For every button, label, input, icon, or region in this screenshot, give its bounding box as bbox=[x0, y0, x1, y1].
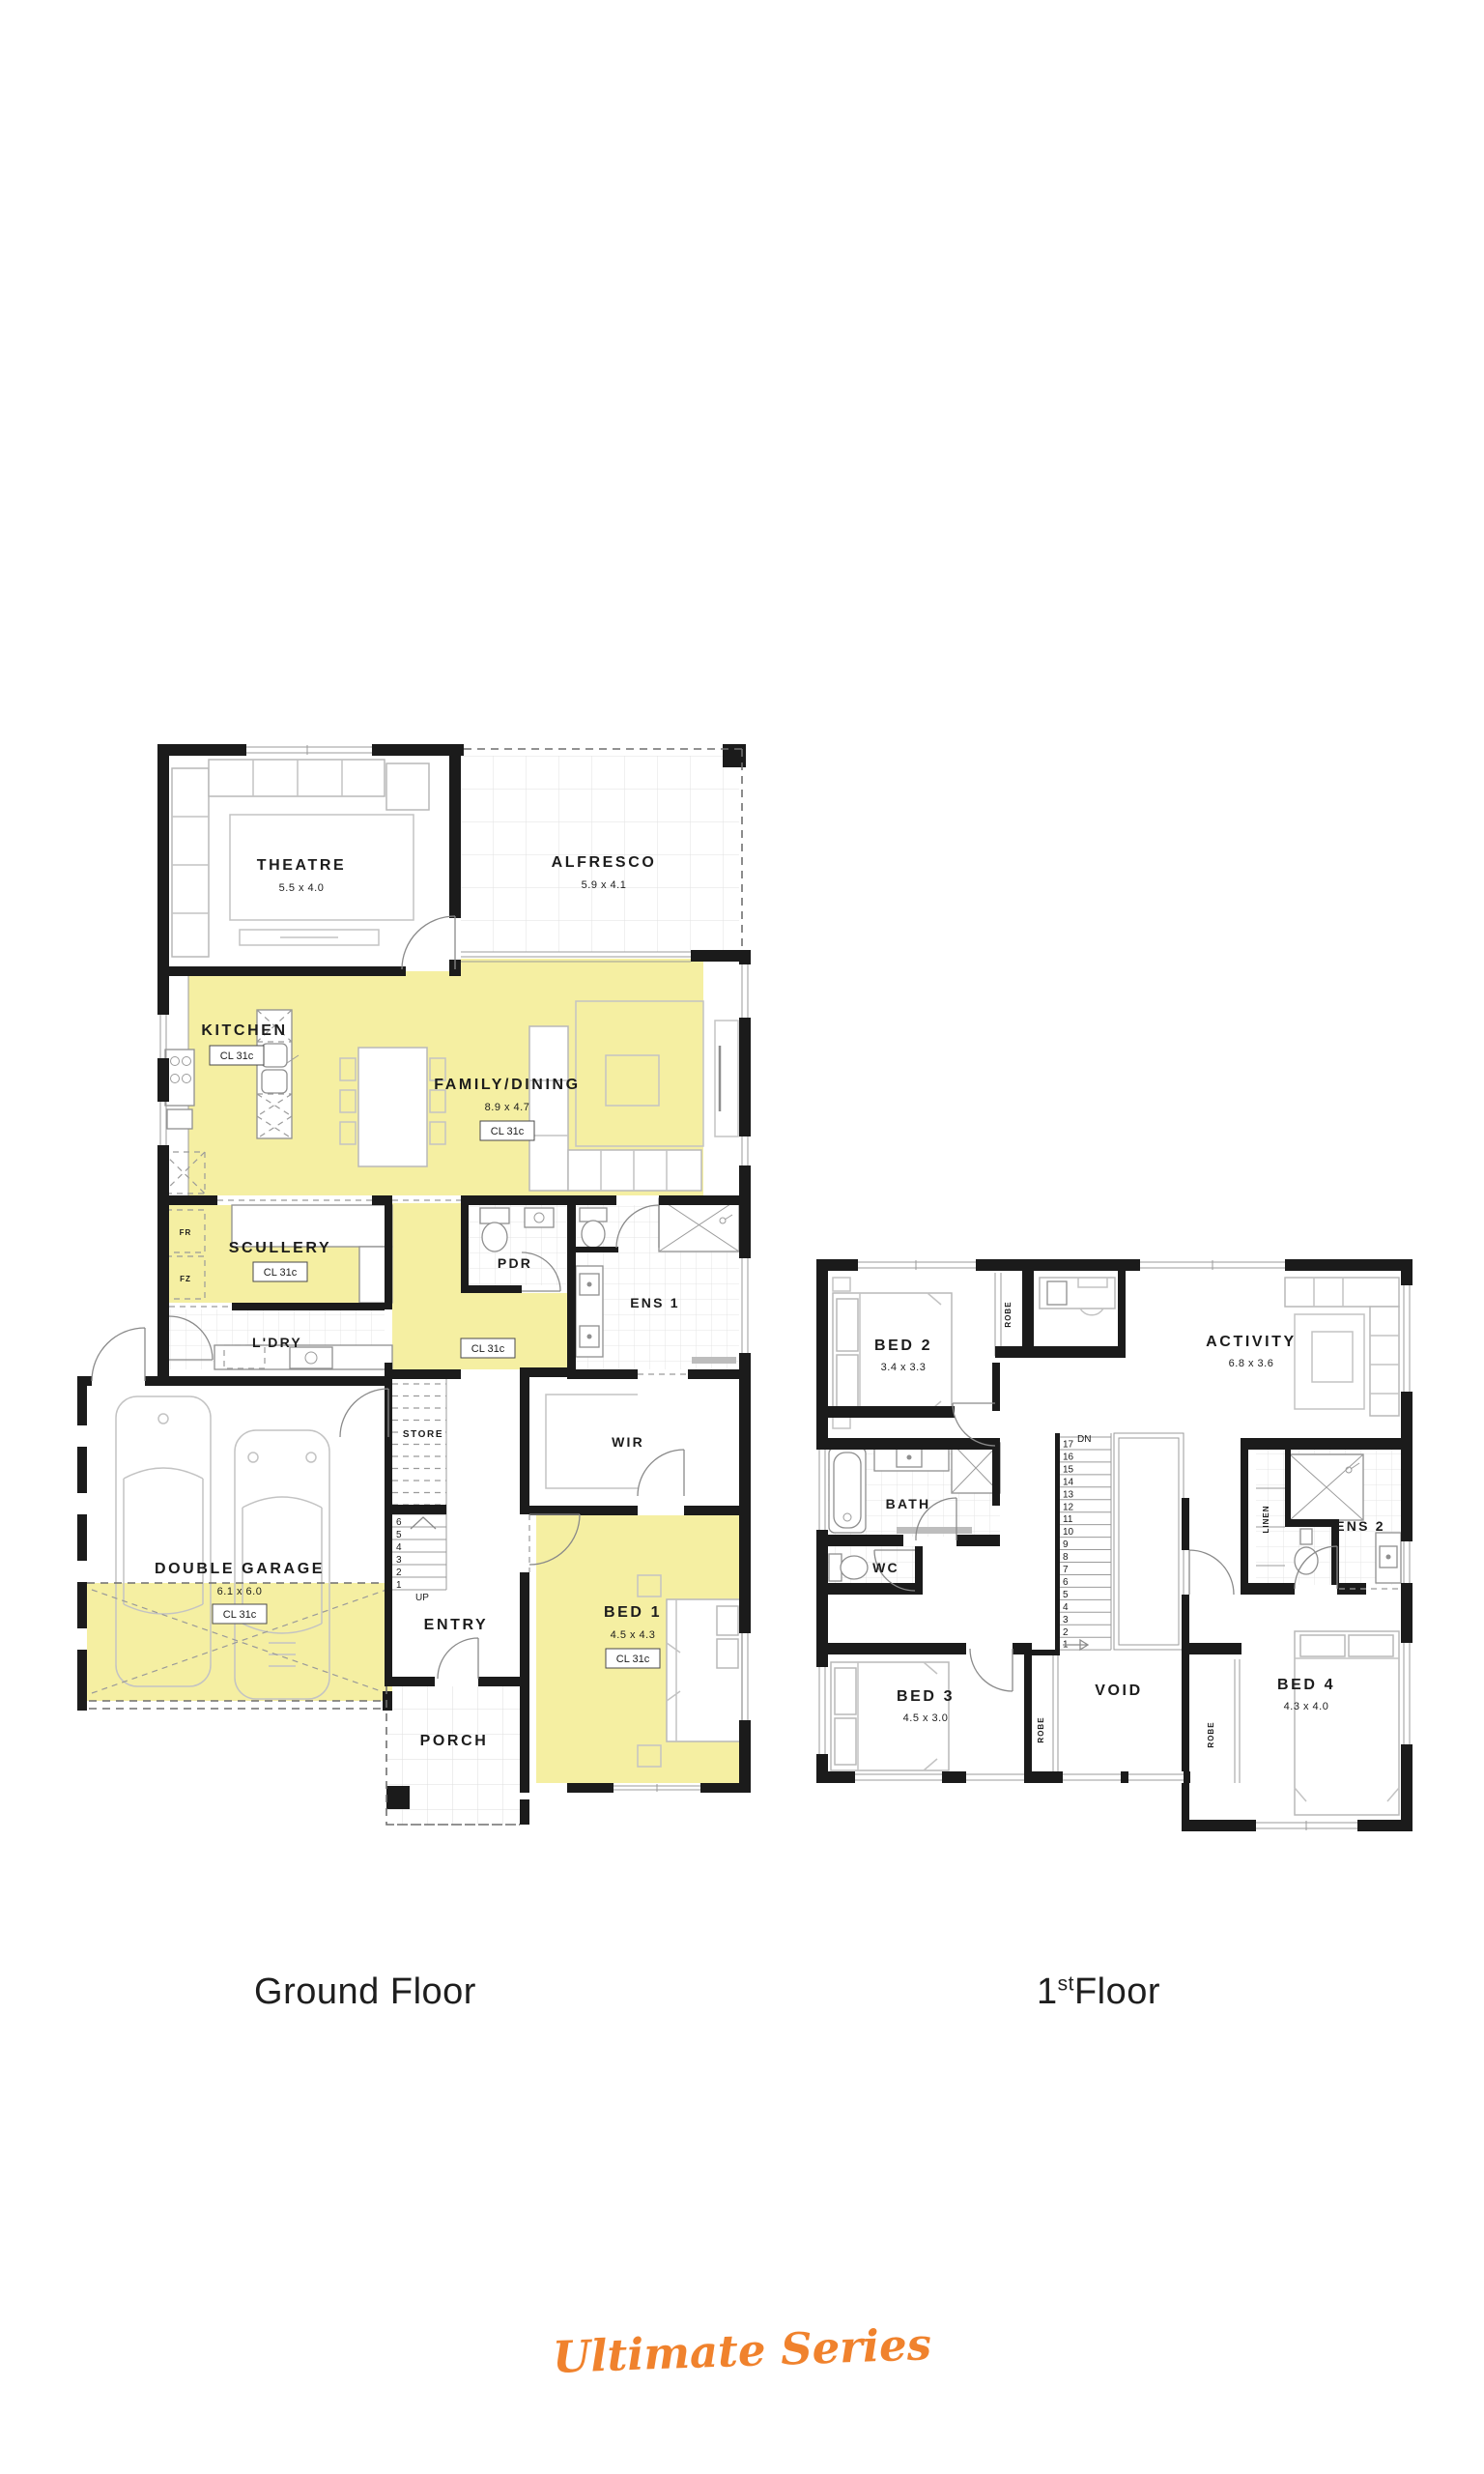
up-label: UP bbox=[415, 1593, 429, 1603]
alfresco-label: ALFRESCO bbox=[552, 854, 657, 871]
wc-label: WC bbox=[872, 1560, 899, 1575]
family-tag: CL 31c bbox=[480, 1121, 534, 1140]
ground-floor-plan: 654321 bbox=[58, 715, 754, 1836]
bed4-dims: 4.3 x 4.0 bbox=[1284, 1701, 1329, 1712]
garage-label: DOUBLE GARAGE bbox=[155, 1561, 325, 1577]
stair-number: 5 bbox=[1063, 1590, 1069, 1600]
svg-text:CL 31c: CL 31c bbox=[220, 1050, 254, 1062]
stair-number: 15 bbox=[1063, 1464, 1074, 1475]
garage-highlight bbox=[87, 1583, 392, 1701]
activity-top-window bbox=[1140, 1259, 1285, 1271]
bed3-label: BED 3 bbox=[897, 1688, 955, 1705]
bed3-dims: 4.5 x 3.0 bbox=[903, 1712, 949, 1724]
kitchen-window-2 bbox=[160, 1102, 166, 1145]
bed4-side-window bbox=[1404, 1643, 1410, 1744]
activity-dims: 6.8 x 3.6 bbox=[1229, 1358, 1274, 1369]
svg-text:CL 31c: CL 31c bbox=[264, 1267, 298, 1279]
bed2-label: BED 2 bbox=[874, 1338, 932, 1354]
scullery-tag: CL 31c bbox=[253, 1262, 307, 1281]
stair-number: 1 bbox=[396, 1580, 402, 1591]
ens2-label: ENS 2 bbox=[1335, 1518, 1384, 1534]
ground-floor-caption: Ground Floor bbox=[172, 1971, 558, 2013]
robe2-label: ROBE bbox=[1004, 1301, 1013, 1327]
stair-void-well bbox=[1063, 1433, 1184, 1650]
laundry-fittings bbox=[214, 1345, 392, 1369]
stair-number: 14 bbox=[1063, 1477, 1074, 1487]
wc-fittings bbox=[829, 1554, 868, 1581]
hall-tag: CL 31c bbox=[461, 1338, 515, 1358]
void-rear-window bbox=[1063, 1771, 1121, 1783]
bed4-furniture bbox=[1295, 1631, 1399, 1815]
garage-door bbox=[89, 1701, 386, 1709]
stair-number: 5 bbox=[396, 1530, 402, 1540]
laundry-label: L'DRY bbox=[252, 1335, 302, 1350]
linen-label: LINEN bbox=[1262, 1506, 1270, 1534]
store-label: STORE bbox=[403, 1429, 443, 1440]
stair-number: 7 bbox=[1063, 1565, 1069, 1575]
brand-logo: Ultimate Series bbox=[451, 2316, 1032, 2387]
stair-number: 12 bbox=[1063, 1502, 1074, 1512]
stair-number: 6 bbox=[396, 1517, 402, 1528]
bed3-side-window bbox=[819, 1667, 825, 1754]
svg-text:CL 31c: CL 31c bbox=[616, 1654, 650, 1665]
robe4-label: ROBE bbox=[1207, 1721, 1215, 1747]
robe3-shelves bbox=[1053, 1655, 1058, 1783]
kitchen-label: KITCHEN bbox=[201, 1022, 287, 1039]
ens1-label: ENS 1 bbox=[630, 1295, 679, 1310]
family-label: FAMILY/DINING bbox=[434, 1077, 580, 1093]
stair-number: 8 bbox=[1063, 1552, 1069, 1563]
bed2-dims: 3.4 x 3.3 bbox=[881, 1362, 927, 1373]
robe4-rear-window bbox=[1128, 1771, 1184, 1783]
robe3-label: ROBE bbox=[1037, 1716, 1045, 1742]
svg-text:CL 31c: CL 31c bbox=[491, 1126, 525, 1137]
floorplan-page: { "colors":{"highlight_yellow":"#f5efa2"… bbox=[0, 0, 1484, 2474]
theatre-dims: 5.5 x 4.0 bbox=[279, 882, 325, 894]
kitchen-tag: CL 31c bbox=[210, 1046, 264, 1065]
stair-number: 4 bbox=[1063, 1602, 1069, 1613]
stair-number: 2 bbox=[1063, 1627, 1069, 1638]
bed4-label: BED 4 bbox=[1277, 1677, 1335, 1693]
scullery-label: SCULLERY bbox=[229, 1240, 331, 1256]
theatre-label: THEATRE bbox=[257, 857, 347, 874]
bed1-tag: CL 31c bbox=[606, 1649, 660, 1668]
svg-text:CL 31c: CL 31c bbox=[471, 1343, 505, 1355]
stair-number: 13 bbox=[1063, 1489, 1074, 1500]
wir-label: WIR bbox=[612, 1434, 644, 1450]
family-window-2 bbox=[742, 1136, 748, 1165]
freezer-label: FZ bbox=[180, 1275, 191, 1283]
first-floor-plan: 1716151413121110987654321 bbox=[792, 1237, 1430, 1846]
garage-tag: CL 31c bbox=[213, 1604, 267, 1624]
alfresco-dims: 5.9 x 4.1 bbox=[582, 879, 627, 891]
stair-number: 4 bbox=[396, 1542, 402, 1553]
bed1-side-window bbox=[742, 1633, 748, 1720]
stair-number: 3 bbox=[396, 1555, 402, 1566]
fridge-label: FR bbox=[180, 1228, 192, 1237]
bed3-rear-window-1 bbox=[855, 1771, 942, 1783]
stair-number: 11 bbox=[1063, 1514, 1073, 1525]
porch-label: PORCH bbox=[420, 1733, 489, 1749]
ground-floor-caption-text: Ground Floor bbox=[254, 1971, 476, 2012]
bath-window bbox=[819, 1450, 825, 1530]
activity-label: ACTIVITY bbox=[1206, 1334, 1297, 1350]
bed1-dims: 4.5 x 4.3 bbox=[611, 1629, 656, 1641]
brand-text: Ultimate Series bbox=[552, 2318, 932, 2383]
store-under-stairs bbox=[392, 1384, 446, 1505]
robe4-shelves bbox=[1235, 1659, 1240, 1783]
bath-label: BATH bbox=[886, 1496, 931, 1511]
gf-staircase: 654321 bbox=[392, 1514, 446, 1591]
activity-furniture bbox=[1285, 1278, 1399, 1416]
bed3-rear-window-2 bbox=[966, 1771, 1024, 1783]
stair-number: 10 bbox=[1063, 1527, 1074, 1538]
theatre-window bbox=[246, 744, 372, 756]
desk-nook bbox=[1040, 1278, 1115, 1315]
bed1-label: BED 1 bbox=[604, 1604, 662, 1621]
stair-number: 9 bbox=[1063, 1539, 1069, 1550]
stair-number: 17 bbox=[1063, 1440, 1074, 1451]
dn-label: DN bbox=[1077, 1434, 1091, 1445]
bed1-rear-window bbox=[614, 1783, 700, 1793]
first-floor-caption-text: Floor bbox=[1074, 1971, 1160, 2012]
svg-text:CL 31c: CL 31c bbox=[223, 1609, 257, 1621]
first-floor-caption: 1stFloor bbox=[905, 1971, 1292, 2013]
first-floor-number: 1 bbox=[1037, 1971, 1058, 2012]
entry-label: ENTRY bbox=[424, 1617, 489, 1633]
robe2-shelves bbox=[995, 1273, 1001, 1356]
ens1-window bbox=[742, 1258, 748, 1353]
bed4-rear-window bbox=[1256, 1820, 1357, 1831]
stair-number: 16 bbox=[1063, 1452, 1074, 1462]
ff-staircase: 1716151413121110987654321 bbox=[1060, 1437, 1111, 1651]
first-floor-sup: st bbox=[1058, 1972, 1074, 1995]
pdr-label: PDR bbox=[498, 1255, 532, 1271]
bed2-window bbox=[858, 1259, 976, 1271]
stair-number: 2 bbox=[396, 1568, 402, 1578]
activity-side-window bbox=[1404, 1285, 1410, 1392]
family-window-1 bbox=[742, 964, 748, 1018]
family-dims: 8.9 x 4.7 bbox=[485, 1102, 530, 1113]
garage-dims: 6.1 x 6.0 bbox=[217, 1586, 263, 1597]
void-label: VOID bbox=[1095, 1683, 1143, 1699]
stair-number: 3 bbox=[1063, 1615, 1069, 1625]
ens2-window bbox=[1404, 1541, 1410, 1583]
stair-number: 6 bbox=[1063, 1577, 1069, 1588]
